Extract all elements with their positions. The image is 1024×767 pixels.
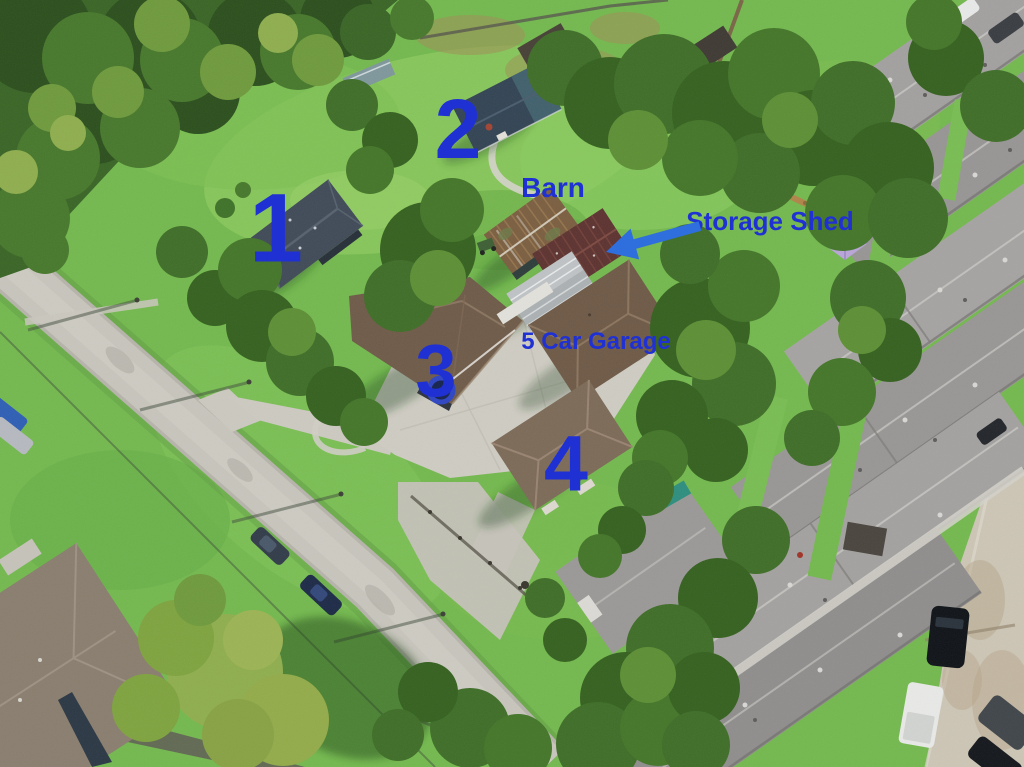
photo-grain-overlay — [0, 0, 1024, 767]
aerial-scene — [0, 0, 1024, 767]
aerial-photo-canvas: 1 2 3 4 Barn Storage Shed 5 Car Garage — [0, 0, 1024, 767]
